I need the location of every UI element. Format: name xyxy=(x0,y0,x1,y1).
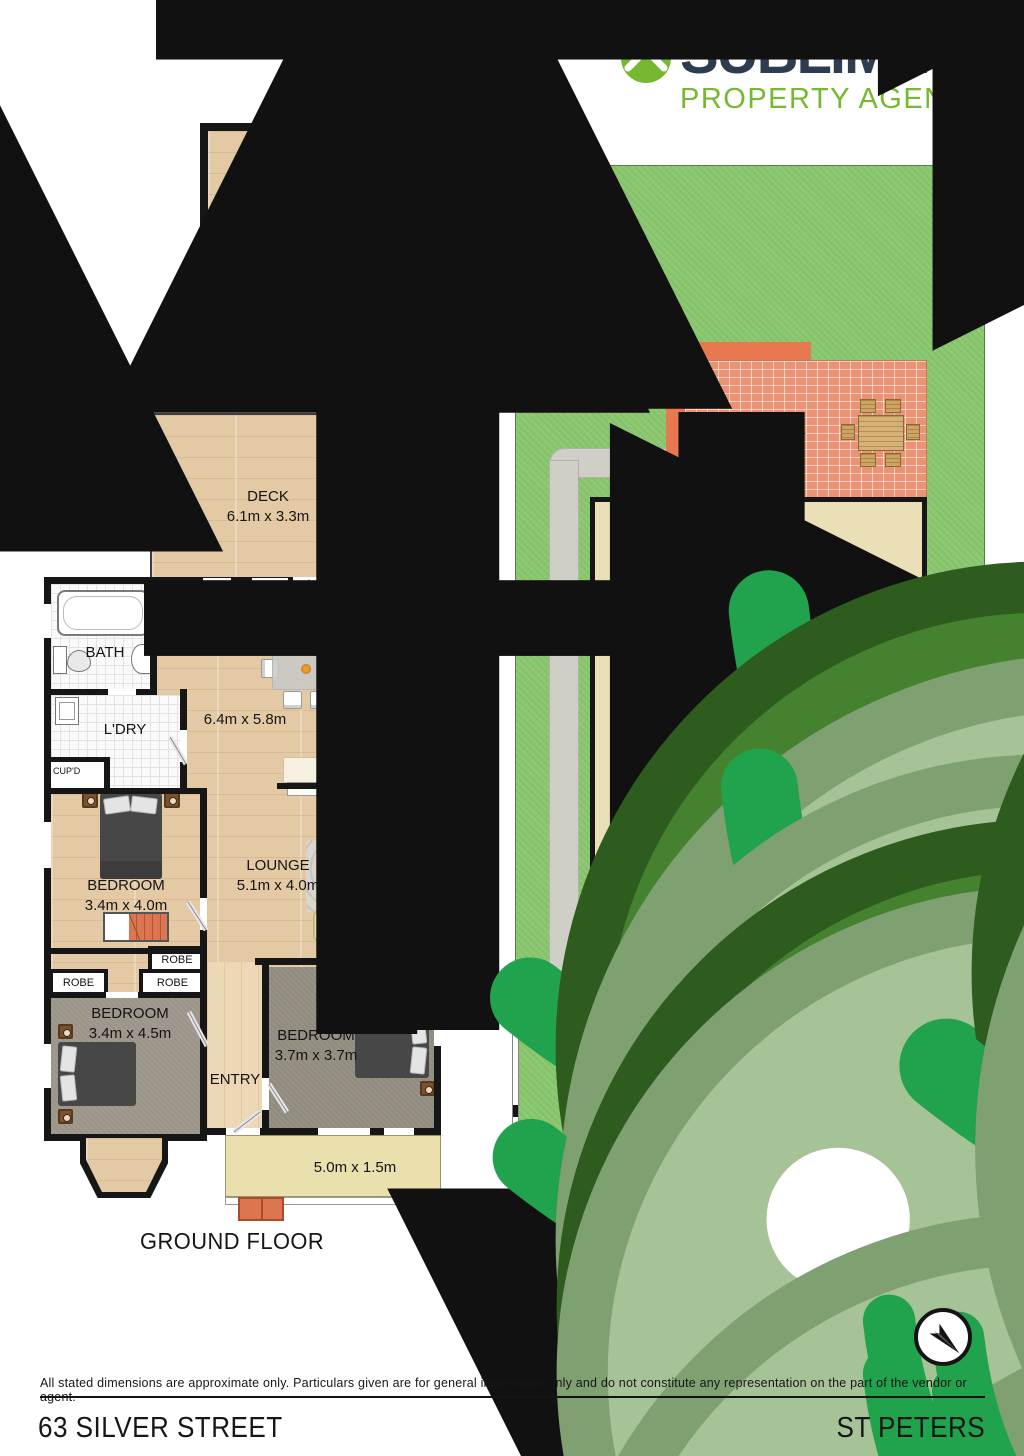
entry-label: ENTRY xyxy=(207,1070,263,1090)
site-deck-edge xyxy=(666,342,684,502)
bedroom2-label: BEDROOM3.4m x 4.5m xyxy=(70,1004,190,1043)
entry-floor xyxy=(207,962,262,1130)
outdoor-chair xyxy=(885,453,901,467)
site-front-path xyxy=(743,1054,788,1206)
site-residence-notch xyxy=(630,1003,692,1029)
brand-logo: SUBLIME PROPERTY AGENTS xyxy=(620,26,990,116)
laundry-tub xyxy=(55,697,79,725)
outdoor-chair xyxy=(360,479,377,494)
deck-label: DECK 6.1m x 3.3m xyxy=(203,487,333,526)
dining-dims: 6.4m x 5.8m xyxy=(200,710,290,730)
porch-dims: 5.0m x 1.5m xyxy=(300,1158,410,1178)
lounge-label: LOUNGE5.1m x 4.0m xyxy=(218,856,338,895)
dining-label: DINING xyxy=(190,628,280,648)
bath-label: BATH xyxy=(75,643,135,663)
attic-dims: 5.4m x 5.6m xyxy=(253,253,383,273)
attic-floor-plan: 5.4m x 5.6m xyxy=(200,123,440,368)
outdoor-chair xyxy=(411,504,426,521)
footer-divider xyxy=(40,1396,985,1398)
kitchen-sink xyxy=(411,648,433,698)
bedroom3-label: BEDROOM3.7m x 3.7m xyxy=(256,1026,376,1065)
fridge xyxy=(410,592,433,620)
bathtub xyxy=(57,590,149,636)
outdoor-chair xyxy=(906,424,920,440)
bay-window xyxy=(80,1138,168,1198)
nightstand xyxy=(82,792,98,808)
dining-table xyxy=(272,646,338,690)
fireplace-label: FP xyxy=(398,930,428,942)
nightstand xyxy=(164,792,180,808)
outdoor-table xyxy=(357,497,407,528)
porch-steps xyxy=(238,1197,284,1221)
property-address: 63 SILVER STREET xyxy=(38,1412,283,1445)
sofa xyxy=(325,808,393,842)
footer-disclaimer: All stated dimensions are approximate on… xyxy=(40,1376,985,1404)
nightstand xyxy=(58,1109,73,1124)
site-residence xyxy=(590,497,927,1010)
property-suburb: ST PETERS xyxy=(836,1412,985,1445)
side-fence xyxy=(512,1008,519,1202)
compass-icon xyxy=(916,1310,970,1364)
laundry-label: L'DRY xyxy=(95,720,155,740)
bedroom1-label: BEDROOM3.4m x 4.0m xyxy=(66,876,186,915)
site-plan-caption: SITE PLAN xyxy=(685,1228,801,1255)
site-deck-label: DECK xyxy=(735,420,835,440)
outdoor-chair xyxy=(386,479,403,494)
floorplan-sheet: SUBLIME PROPERTY AGENTS 5.4m x 5.6m DECK… xyxy=(0,0,1024,1456)
outdoor-chair xyxy=(841,424,855,440)
outdoor-chair xyxy=(860,453,876,467)
dining-chair xyxy=(283,691,302,709)
nightstand xyxy=(420,997,435,1012)
ground-floor-caption: GROUND FLOOR xyxy=(140,1228,324,1255)
site-deck-edge xyxy=(666,342,811,362)
site-steps xyxy=(753,1036,790,1054)
sofa xyxy=(313,910,407,942)
kitchen-label: KITCHEN xyxy=(318,716,398,736)
brand-name: SUBLIME xyxy=(680,26,987,81)
nightstand xyxy=(420,1081,435,1096)
attic-stairs xyxy=(248,203,382,238)
ground-stairs xyxy=(103,912,169,942)
outdoor-chair xyxy=(338,504,353,521)
outdoor-chair xyxy=(885,399,901,413)
garden-path xyxy=(549,460,579,1008)
outdoor-table xyxy=(858,415,904,451)
logo-house-icon xyxy=(620,32,672,84)
dining-chair xyxy=(310,691,329,709)
residence-label: RESIDENCE xyxy=(698,718,818,738)
toilet xyxy=(53,646,67,674)
outdoor-chair xyxy=(360,531,377,546)
outdoor-chair xyxy=(386,531,403,546)
bed xyxy=(100,793,162,879)
stove-cooktop xyxy=(346,759,376,781)
outdoor-chair xyxy=(860,399,876,413)
site-porch xyxy=(729,982,927,1038)
bed xyxy=(58,1042,136,1106)
cupboard-label: CUP'D xyxy=(53,766,103,776)
brand-tagline: PROPERTY AGENTS xyxy=(680,83,987,116)
